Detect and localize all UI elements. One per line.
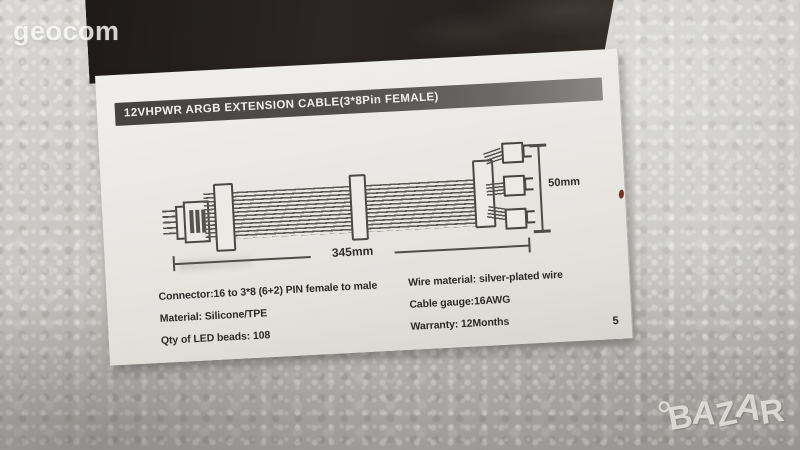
length-dimension-line-right [395, 244, 531, 253]
red-ink-mark [619, 189, 625, 198]
spec-connector: Connector:16 to 3*8 (6+2) PIN female to … [158, 280, 377, 303]
connector-pin [195, 210, 200, 233]
print-showthrough-smudge [179, 256, 253, 271]
length-dimension-tick-right [528, 237, 531, 252]
manual-page: 12VHPWR ARGB EXTENSION CABLE(3*8Pin FEMA… [95, 49, 633, 366]
female-8pin-connector-2 [503, 175, 526, 197]
spec-warranty: Warranty: 12Months [410, 316, 509, 333]
connector-pin [189, 210, 194, 233]
length-dimension-label: 345mm [310, 243, 395, 261]
cable-diagram: 50mm 345mm [128, 138, 604, 282]
photo-scene: 12VHPWR ARGB EXTENSION CABLE(3*8Pin FEMA… [0, 0, 800, 450]
page-number: 5 [612, 315, 619, 327]
spec-led-beads: Qty of LED beads: 108 [161, 329, 271, 347]
cable-comb-2 [349, 174, 369, 241]
cable-comb-1 [213, 183, 237, 252]
spec-wire-material: Wire material: silver-plated wire [408, 269, 563, 289]
height-dimension-cap-top [529, 143, 546, 146]
height-dimension-label: 50mm [548, 176, 580, 190]
female-8pin-connector-1 [501, 142, 524, 164]
height-dimension-line [537, 145, 544, 233]
female-8pin-connector-3 [505, 208, 528, 230]
wire-fan-middle [486, 182, 505, 196]
wire-fan-bottom [487, 206, 506, 220]
bazar-logo-text: BAZAR [667, 391, 784, 434]
page-title: 12VHPWR ARGB EXTENSION CABLE(3*8Pin FEMA… [114, 77, 603, 126]
spec-cable-gauge: Cable gauge:16AWG [409, 294, 510, 311]
bazar-watermark: BAZAR [667, 391, 784, 435]
wire-bundle [203, 179, 481, 240]
seller-watermark: geocom [13, 16, 120, 47]
spec-material: Material: Silicone/TPE [159, 307, 267, 325]
page-header-bar: 12VHPWR ARGB EXTENSION CABLE(3*8Pin FEMA… [114, 77, 603, 126]
height-dimension-cap-bottom [534, 229, 551, 232]
